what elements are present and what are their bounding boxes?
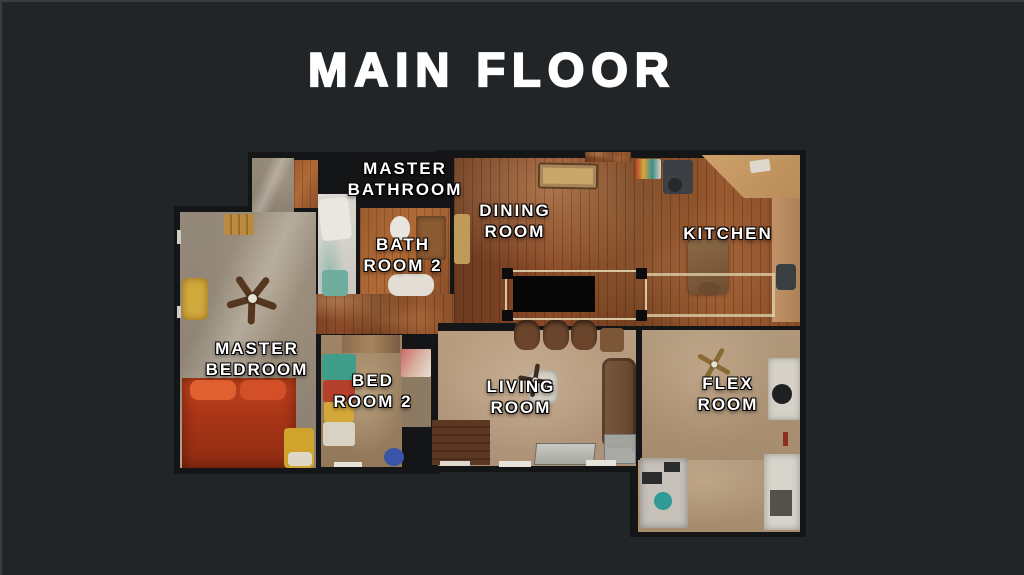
wall-living-top	[438, 323, 516, 331]
label-master-bedroom: MASTER BEDROOM	[206, 338, 309, 380]
railing-post	[502, 310, 513, 321]
label-bed-room-2: BED ROOM 2	[333, 370, 412, 412]
bathtub	[388, 274, 434, 296]
floor-plan-page: MAIN FLOOR	[0, 0, 1024, 575]
label-flex-room: FLEX ROOM	[698, 373, 759, 415]
page-title: MAIN FLOOR	[172, 42, 812, 97]
label-dining-room: DINING ROOM	[479, 200, 551, 242]
pillow	[240, 380, 286, 400]
label-line: MASTER	[206, 338, 309, 359]
dresser	[224, 214, 254, 235]
armchair	[182, 278, 208, 320]
label-living-room: LIVING ROOM	[487, 376, 556, 418]
railing-rail	[647, 314, 775, 317]
white-pillow	[288, 452, 312, 466]
office-equipment	[770, 490, 792, 516]
teal-chair	[654, 492, 672, 510]
vent-marker	[783, 432, 788, 446]
label-line: BATH	[363, 234, 442, 255]
label-line: BEDROOM	[206, 359, 309, 380]
door-threshold	[334, 462, 362, 467]
label-line: ROOM 2	[333, 391, 412, 412]
pillow	[190, 380, 236, 400]
bar-stool	[514, 320, 540, 350]
door-threshold	[586, 460, 616, 466]
kitchen-chair	[698, 282, 720, 296]
label-line: ROOM	[487, 397, 556, 418]
bath-mat	[322, 270, 348, 296]
label-line: BED	[333, 370, 412, 391]
label-line: KITCHEN	[683, 223, 773, 244]
bar-stool	[571, 320, 597, 350]
kitchen-side-counter	[772, 198, 800, 322]
label-line: ROOM	[698, 394, 759, 415]
railing-post	[636, 310, 647, 321]
runner-rug	[538, 162, 598, 189]
label-kitchen: KITCHEN	[683, 223, 773, 244]
bedroom2-furniture	[342, 335, 400, 353]
shower	[318, 197, 352, 242]
entry-nook-floor	[585, 152, 631, 162]
label-line: MASTER	[348, 158, 463, 179]
railing-post	[502, 268, 513, 279]
label-line: ROOM	[479, 221, 551, 242]
label-line: DINING	[479, 200, 551, 221]
railing-rail	[647, 273, 775, 276]
entry-wood-floor	[432, 420, 490, 465]
monitor	[642, 472, 662, 484]
decor-shelf	[635, 159, 661, 179]
label-bath-room-2: BATH ROOM 2	[363, 234, 442, 276]
railing-rail	[772, 273, 775, 317]
label-line: FLEX	[698, 373, 759, 394]
door-threshold	[440, 461, 470, 466]
monitor	[664, 462, 680, 472]
label-master-bathroom: MASTER BATHROOM	[348, 158, 463, 200]
window-marker	[177, 306, 181, 318]
desk-chair	[668, 178, 682, 192]
bar-stool	[543, 320, 569, 350]
ottoman	[600, 328, 624, 352]
label-line: LIVING	[487, 376, 556, 397]
kid-bed-white	[323, 422, 355, 446]
door-threshold	[499, 461, 531, 467]
closet-floor	[294, 160, 318, 208]
stair-opening	[513, 276, 595, 312]
label-line: ROOM 2	[363, 255, 442, 276]
side-cart	[454, 214, 470, 264]
railing-post	[636, 268, 647, 279]
hallway-carpet	[252, 158, 294, 218]
bean-bag	[384, 448, 404, 466]
kitchen-sink	[776, 264, 796, 290]
label-line: BATHROOM	[348, 179, 463, 200]
window-marker	[177, 230, 181, 244]
office-chair	[772, 384, 792, 404]
